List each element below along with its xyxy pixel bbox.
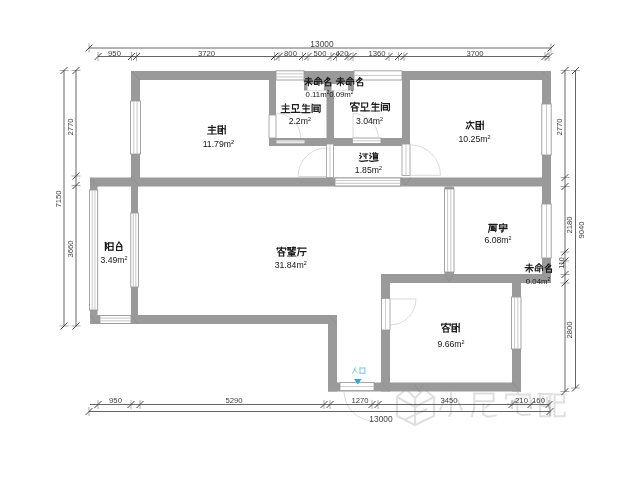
svg-text:7150: 7150 <box>54 190 63 207</box>
svg-text:31.84m2: 31.84m2 <box>275 260 307 270</box>
svg-text:6.08m2: 6.08m2 <box>484 235 511 245</box>
svg-text:10.25m2: 10.25m2 <box>459 134 491 144</box>
svg-text:0.09m2: 0.09m2 <box>329 90 354 99</box>
svg-text:2180: 2180 <box>565 216 574 233</box>
svg-text:3720: 3720 <box>198 49 215 58</box>
svg-text:9.66m2: 9.66m2 <box>437 339 464 349</box>
svg-text:3.04m2: 3.04m2 <box>356 116 383 126</box>
svg-text:3700: 3700 <box>466 49 483 58</box>
svg-text:950: 950 <box>109 396 122 405</box>
svg-text:2.2m2: 2.2m2 <box>289 116 311 126</box>
svg-text:1360: 1360 <box>368 49 385 58</box>
svg-text:3.49m2: 3.49m2 <box>100 255 127 265</box>
svg-text:800: 800 <box>284 49 297 58</box>
svg-text:1.85m2: 1.85m2 <box>355 165 382 175</box>
svg-text:2800: 2800 <box>565 321 574 338</box>
svg-text:11.79m2: 11.79m2 <box>203 139 234 149</box>
svg-text:13000: 13000 <box>369 414 393 424</box>
svg-text:950: 950 <box>108 49 121 58</box>
svg-text:420: 420 <box>336 49 349 58</box>
svg-text:3660: 3660 <box>66 240 75 257</box>
svg-text:2770: 2770 <box>66 118 75 135</box>
svg-text:210: 210 <box>515 396 528 405</box>
svg-text:0.04m2: 0.04m2 <box>526 277 551 286</box>
svg-text:9040: 9040 <box>577 221 586 238</box>
svg-text:3450: 3450 <box>440 396 457 405</box>
svg-text:5290: 5290 <box>225 396 242 405</box>
svg-text:13000: 13000 <box>310 39 334 49</box>
svg-text:2770: 2770 <box>555 118 564 135</box>
svg-text:160: 160 <box>532 396 545 405</box>
svg-text:1270: 1270 <box>351 396 368 405</box>
svg-text:0.11m2: 0.11m2 <box>306 90 330 99</box>
svg-text:110: 110 <box>557 257 566 268</box>
svg-text:500: 500 <box>314 49 327 58</box>
